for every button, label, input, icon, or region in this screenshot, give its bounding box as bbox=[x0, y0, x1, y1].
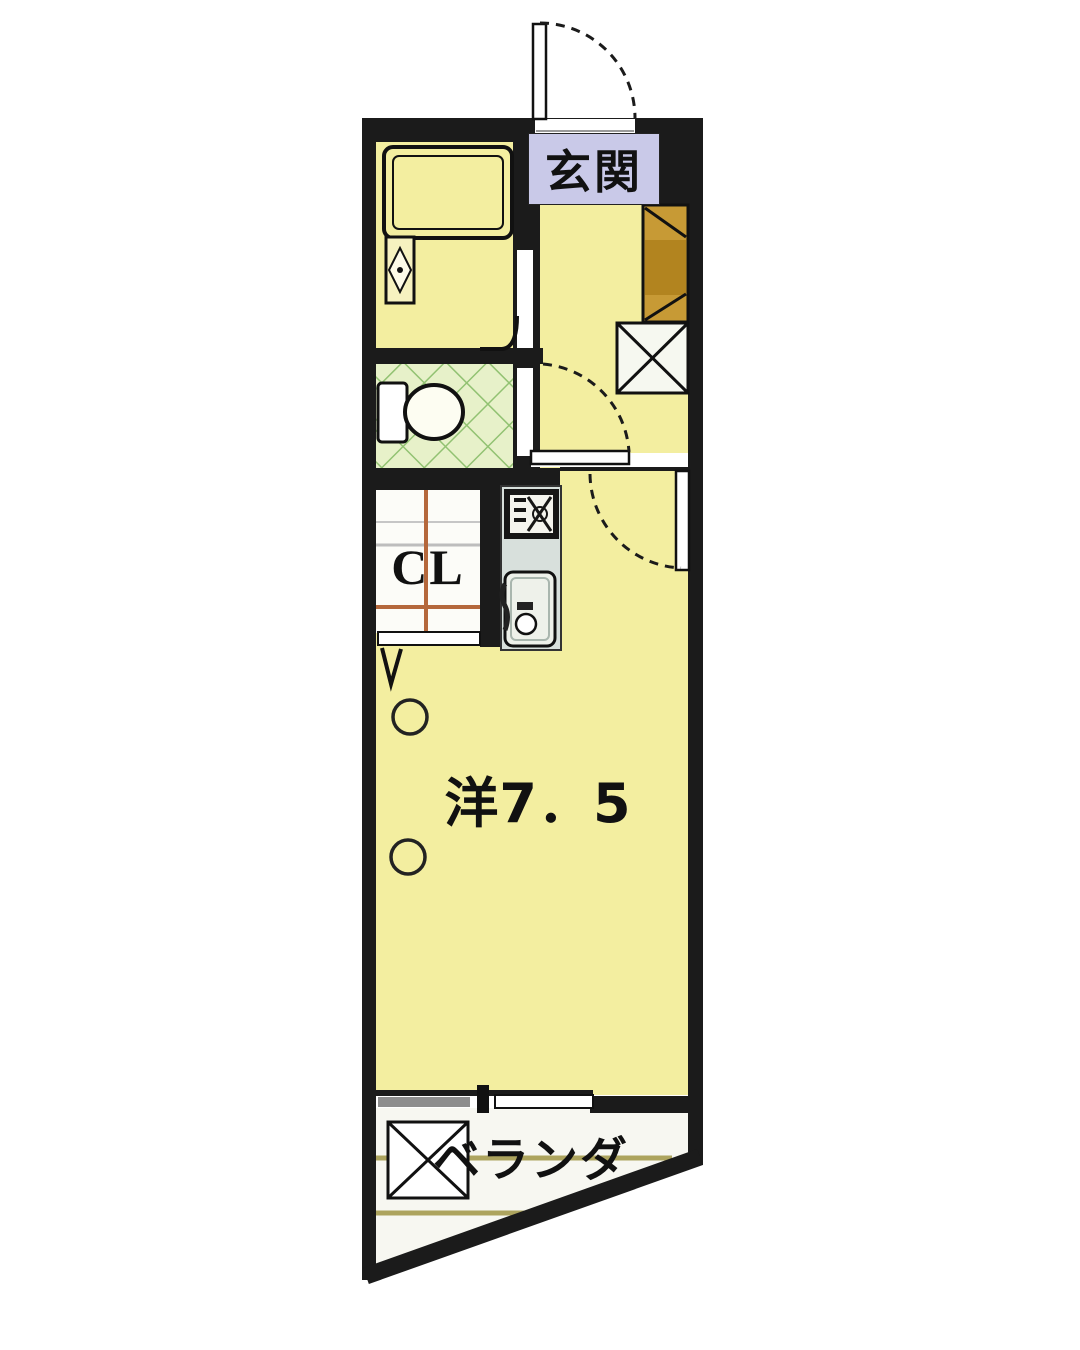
wall-bottom-solid bbox=[590, 1096, 703, 1113]
veranda-label: ベランダ bbox=[408, 1124, 654, 1186]
bathtub-icon bbox=[384, 147, 512, 238]
wall-cl-right bbox=[480, 490, 500, 647]
window-pane-gray bbox=[378, 1097, 470, 1107]
kitchen-unit bbox=[501, 486, 561, 650]
entrance-door-icon bbox=[533, 23, 635, 119]
bath-washer-icon bbox=[386, 237, 414, 303]
shoe-cabinet-icon bbox=[643, 205, 688, 322]
bath-door-opening bbox=[517, 250, 533, 348]
sink-icon bbox=[502, 572, 555, 646]
toilet-icon bbox=[378, 383, 463, 442]
wall-left bbox=[362, 118, 376, 1280]
wall-top-right-chunk bbox=[655, 142, 703, 206]
entrance-label: 玄関 bbox=[528, 133, 660, 205]
toilet-door-opening bbox=[517, 368, 533, 456]
floorplan: 玄関 CL 洋7．5 ベランダ bbox=[0, 0, 1080, 1350]
wall-right bbox=[688, 118, 703, 1165]
entrance-door-arc-icon bbox=[540, 23, 635, 118]
window-center-tick bbox=[477, 1085, 489, 1113]
main-room-label: 洋7．5 bbox=[408, 764, 668, 832]
closet-threshold bbox=[378, 632, 480, 645]
stove-icon bbox=[504, 489, 559, 539]
window-pane-white bbox=[495, 1095, 593, 1108]
hall-xbox-icon bbox=[617, 323, 688, 393]
closet-label: CL bbox=[378, 536, 478, 598]
